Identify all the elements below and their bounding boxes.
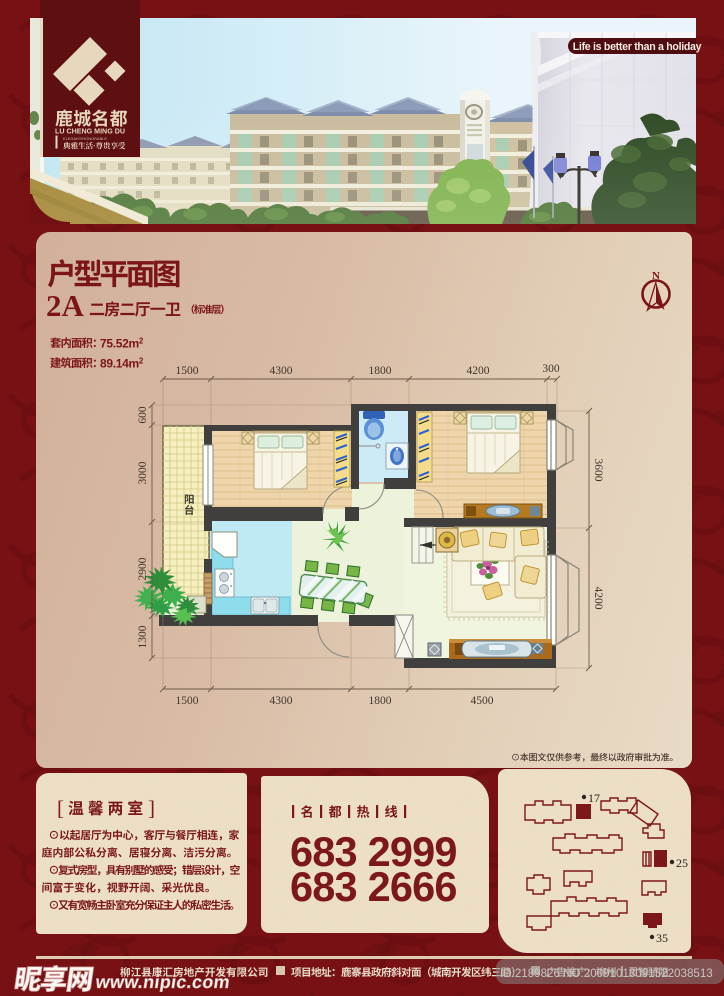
svg-text:N: N bbox=[652, 270, 660, 282]
svg-text:300: 300 bbox=[542, 363, 560, 375]
svg-text:ELEGANT/HONORABLE: ELEGANT/HONORABLE bbox=[63, 136, 107, 141]
svg-text:ID:2189826 NO:2009101809152203: ID:2189826 NO:20091018091522038513 bbox=[500, 967, 713, 980]
svg-text:1800: 1800 bbox=[369, 365, 392, 377]
svg-text:3000: 3000 bbox=[137, 461, 149, 484]
svg-text:1500: 1500 bbox=[176, 695, 199, 707]
svg-text:75.52m2: 75.52m2 bbox=[100, 337, 144, 351]
svg-text:89.14m2: 89.14m2 bbox=[100, 357, 144, 371]
svg-text:4300: 4300 bbox=[270, 695, 293, 707]
svg-text:1500: 1500 bbox=[176, 365, 199, 377]
svg-text:2900: 2900 bbox=[137, 557, 149, 580]
svg-text:4500: 4500 bbox=[471, 695, 494, 707]
svg-text:1800: 1800 bbox=[369, 695, 392, 707]
svg-text:1300: 1300 bbox=[137, 625, 149, 648]
svg-text:LU CHENG MING DU: LU CHENG MING DU bbox=[55, 127, 125, 136]
svg-text:600: 600 bbox=[137, 406, 149, 424]
svg-text:3600: 3600 bbox=[592, 459, 604, 482]
svg-text:www.nipic.com: www.nipic.com bbox=[93, 972, 231, 992]
svg-text:2A: 2A bbox=[46, 288, 85, 323]
svg-text:4300: 4300 bbox=[270, 365, 293, 377]
svg-text:4200: 4200 bbox=[467, 365, 490, 377]
svg-text:Life is better than a holiday: Life is better than a holiday bbox=[573, 41, 702, 53]
svg-text:4200: 4200 bbox=[592, 587, 604, 610]
